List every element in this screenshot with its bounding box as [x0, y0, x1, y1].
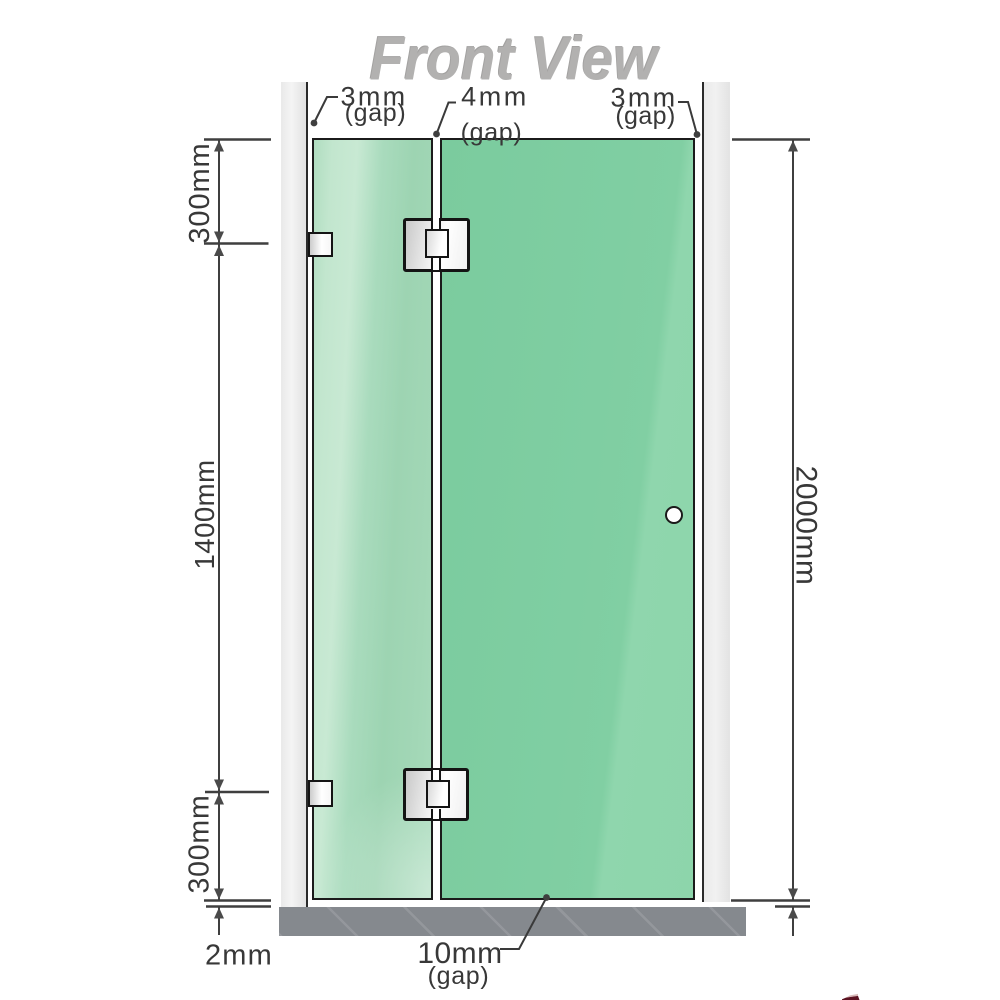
svg-text:300mm: 300mm [184, 794, 216, 893]
svg-text:(gap): (gap) [428, 962, 490, 990]
svg-text:(gap): (gap) [461, 119, 523, 147]
svg-text:(gap): (gap) [615, 102, 675, 130]
svg-text:2mm: 2mm [205, 940, 273, 972]
svg-text:4mm: 4mm [461, 82, 529, 112]
svg-text:(gap): (gap) [345, 99, 407, 127]
svg-text:300mm: 300mm [184, 142, 216, 243]
svg-text:2000mm: 2000mm [790, 466, 823, 586]
svg-text:1400mm: 1400mm [189, 460, 220, 570]
